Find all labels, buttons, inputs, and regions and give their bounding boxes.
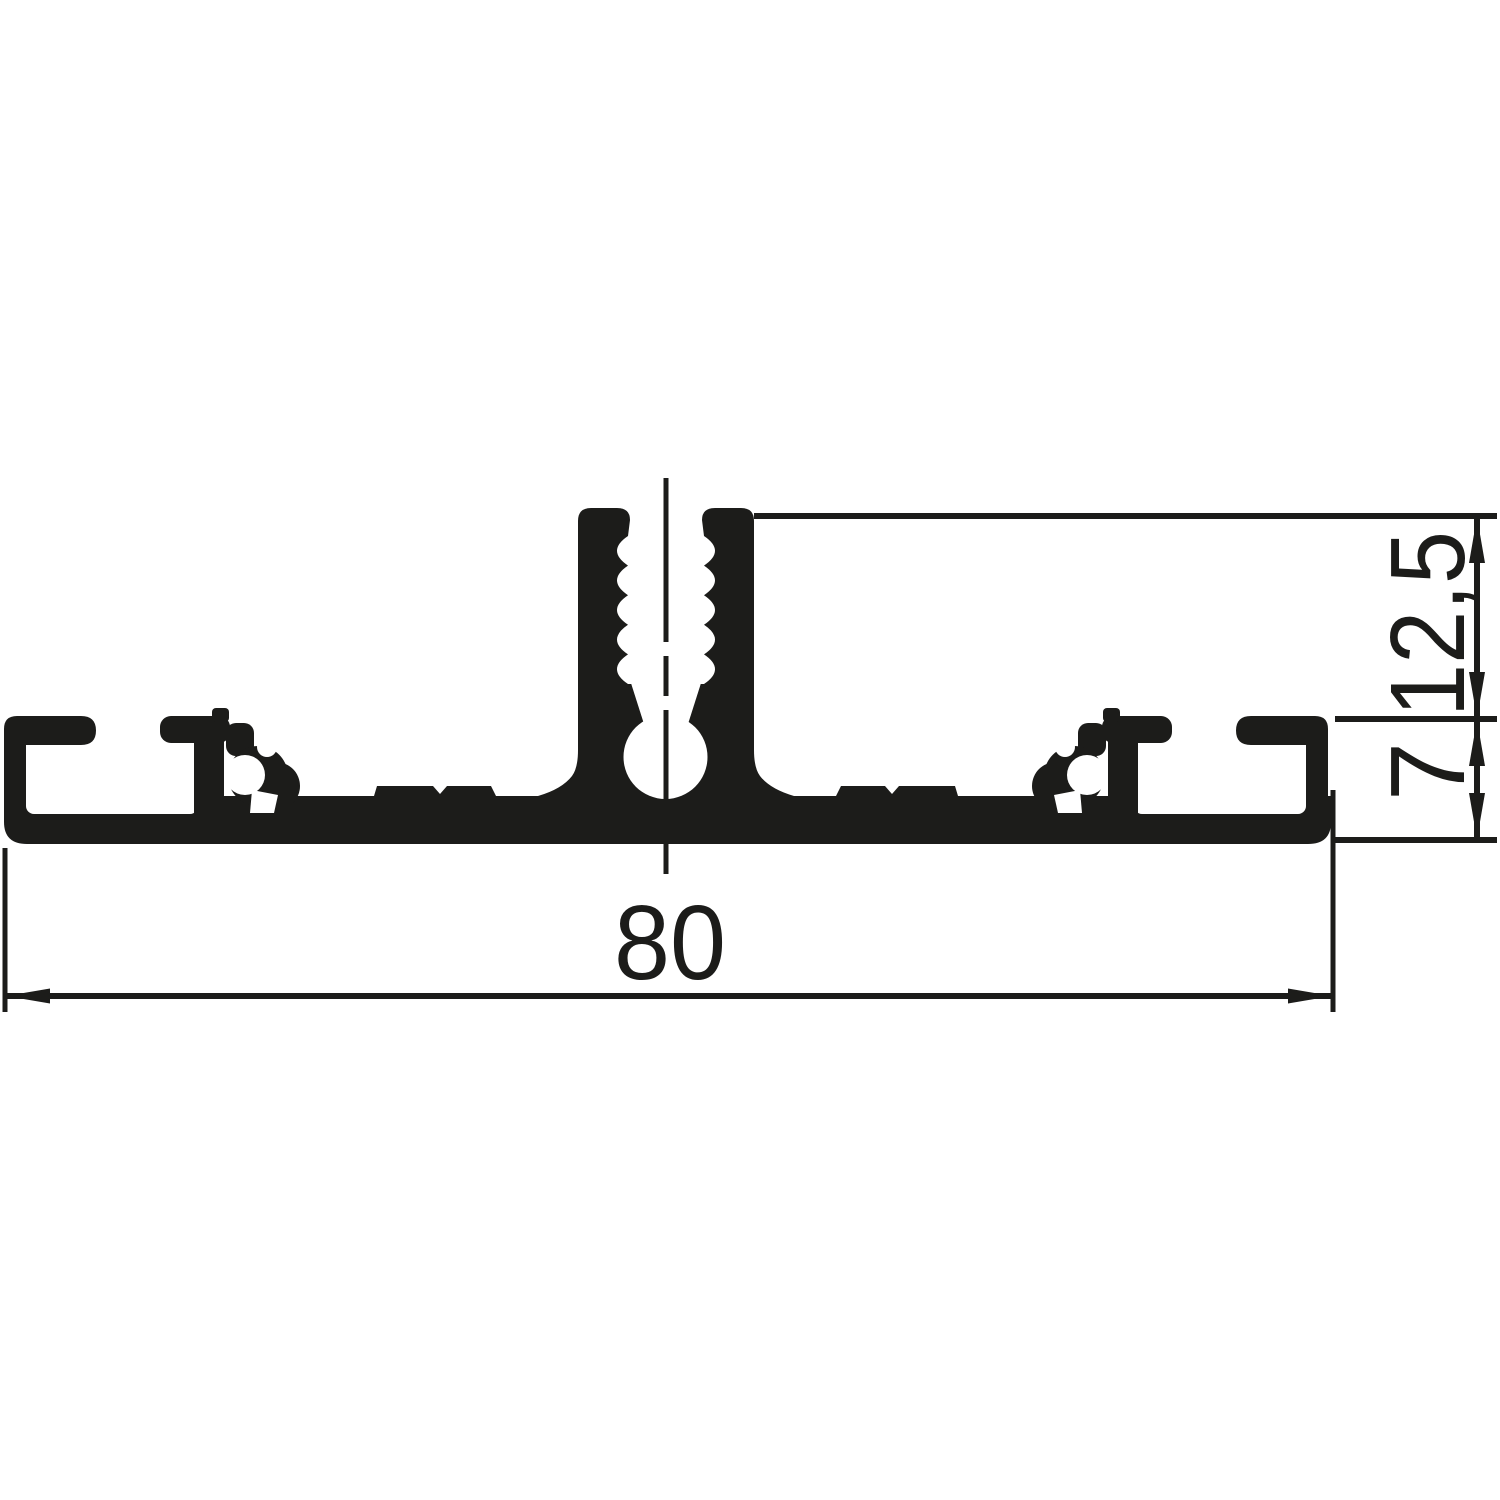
arrowhead-right-width xyxy=(1288,989,1332,1004)
dim-label-base-thickness: 7 xyxy=(1369,742,1487,801)
profile-right-half xyxy=(664,508,1328,820)
profile-cross-section-drawing: 12,5 7 80 xyxy=(0,0,1500,1500)
dim-label-upper-height: 12,5 xyxy=(1369,531,1487,717)
drawing-canvas: 12,5 7 80 xyxy=(0,0,1500,1500)
profile-left-half xyxy=(4,508,668,820)
arrowhead-left-width xyxy=(6,989,50,1004)
dim-label-width: 80 xyxy=(614,884,726,1002)
